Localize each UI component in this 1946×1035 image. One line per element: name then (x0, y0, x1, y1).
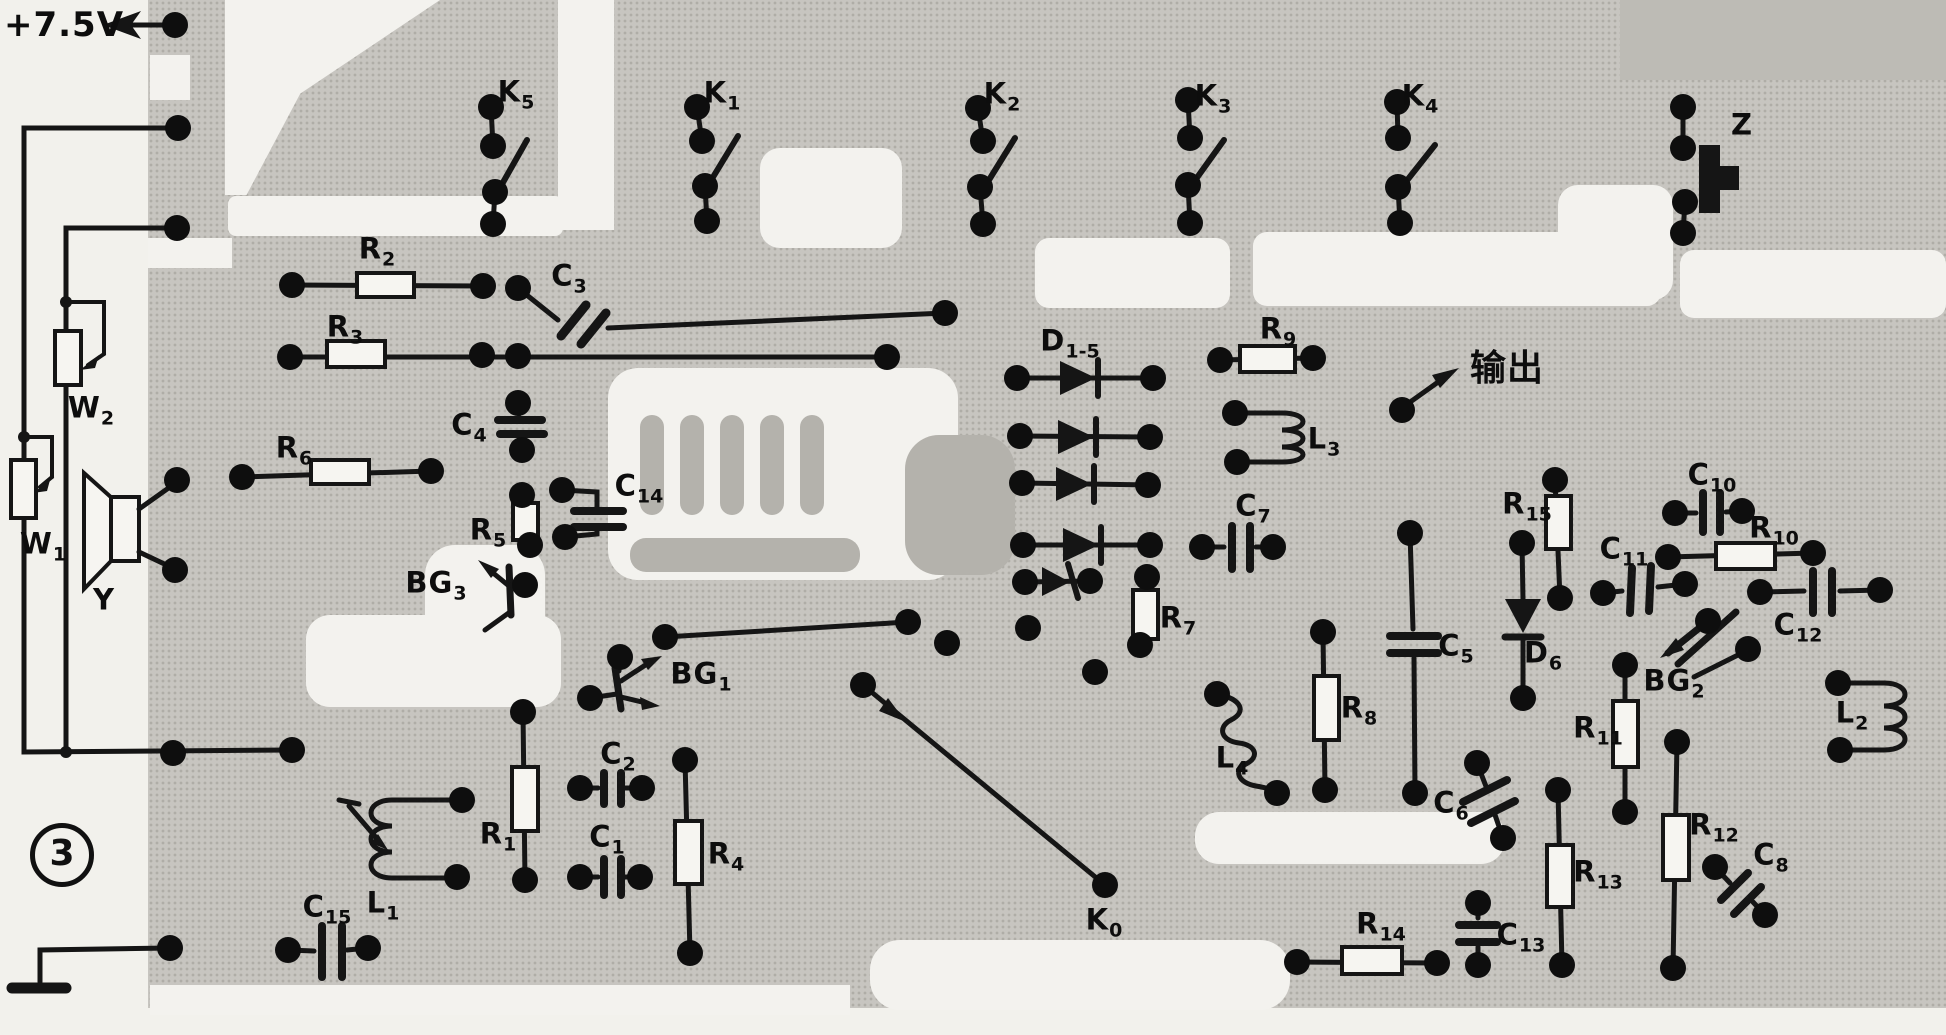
solder-pad (895, 609, 921, 635)
solder-pad (692, 173, 718, 199)
label-R13: R13 (1573, 858, 1623, 893)
solder-pad (1670, 94, 1696, 120)
solder-pad (694, 208, 720, 234)
label-R6: R6 (276, 434, 313, 469)
solder-pad (1264, 780, 1290, 806)
solder-pad (275, 937, 301, 963)
solder-pad (1385, 125, 1411, 151)
solder-pad (1177, 125, 1203, 151)
resistor-R14 (1297, 947, 1437, 974)
label-C8: C8 (1753, 841, 1789, 876)
solder-pad (517, 532, 543, 558)
solder-pad (1660, 955, 1686, 981)
circuit-board-svg (0, 0, 1946, 1035)
solder-pad (1312, 777, 1338, 803)
solder-pad (1547, 585, 1573, 611)
diode-D1 (1017, 360, 1153, 396)
solder-pad (1222, 400, 1248, 426)
solder-pad (512, 867, 538, 893)
label-C13: C13 (1497, 921, 1546, 956)
solder-pad (629, 775, 655, 801)
label-R12: R12 (1689, 811, 1739, 846)
label-K5: K5 (498, 78, 535, 113)
solder-pad (1137, 532, 1163, 558)
label-L2: L2 (1836, 699, 1869, 734)
label-K0: K0 (1086, 906, 1123, 941)
solder-pad (1510, 685, 1536, 711)
solder-pad (1127, 632, 1153, 658)
solder-pad (1010, 532, 1036, 558)
solder-pad (505, 275, 531, 301)
solder-pad (480, 211, 506, 237)
figure-number-circle: 3 (30, 823, 94, 887)
label-R9: R9 (1260, 315, 1297, 350)
solder-pad (1310, 619, 1336, 645)
solder-pad (1867, 577, 1893, 603)
solder-pad (1612, 799, 1638, 825)
solder-pad (1012, 569, 1038, 595)
resistor-R2 (292, 273, 483, 297)
solder-pad (567, 864, 593, 890)
solder-pad (160, 740, 186, 766)
label-C2: C2 (600, 740, 636, 775)
solder-pad (970, 211, 996, 237)
label-R8: R8 (1341, 694, 1378, 729)
solder-pad (677, 940, 703, 966)
label-L4: L4 (1216, 744, 1249, 779)
solder-pad (970, 128, 996, 154)
solder-pad (1389, 397, 1415, 423)
solder-pad (1015, 615, 1041, 641)
switch-K4 (1397, 102, 1435, 223)
solder-pad (1465, 952, 1491, 978)
solder-pad (277, 344, 303, 370)
label-R15: R15 (1502, 490, 1552, 525)
solder-pad (162, 12, 188, 38)
solder-pad (1134, 564, 1160, 590)
solder-pad (1752, 902, 1778, 928)
inductor-L1 (339, 800, 462, 878)
solder-pad (567, 775, 593, 801)
solder-pad (1464, 750, 1490, 776)
solder-pad (162, 557, 188, 583)
resistor-R12 (1663, 742, 1689, 968)
solder-pad (470, 273, 496, 299)
solder-pad (279, 272, 305, 298)
label-R7: R7 (1160, 604, 1197, 639)
label-Y: Y (93, 586, 115, 621)
label-C7: C7 (1235, 492, 1271, 527)
label-C6: C6 (1433, 789, 1469, 824)
label-power: +7.5V (4, 8, 124, 42)
output-arrow (1406, 368, 1459, 405)
diode-D2 (1020, 419, 1150, 455)
label-C3: C3 (551, 262, 587, 297)
switch-K5 (491, 107, 527, 224)
solder-pad (509, 482, 535, 508)
solder-pad (509, 437, 535, 463)
label-K2: K2 (984, 80, 1021, 115)
switch-K2 (978, 108, 1015, 224)
solder-pad (689, 128, 715, 154)
solder-pad (1800, 540, 1826, 566)
label-R10: R10 (1749, 514, 1799, 549)
solder-pad (1655, 544, 1681, 570)
solder-pad (967, 174, 993, 200)
solder-pads (157, 12, 1893, 981)
solder-pad (164, 215, 190, 241)
potentiometer-W2 (55, 302, 104, 385)
solder-pad (510, 699, 536, 725)
label-BG1: BG1 (670, 660, 731, 695)
label-W2: W2 (68, 394, 114, 429)
solder-pad (1207, 347, 1233, 373)
label-Z: Z (1731, 111, 1753, 146)
solder-pad (355, 935, 381, 961)
solder-pad (932, 300, 958, 326)
label-BG3: BG3 (405, 569, 466, 604)
solder-pad (1664, 729, 1690, 755)
potentiometer-W1 (11, 437, 52, 518)
solder-pad (1612, 652, 1638, 678)
solder-pad (577, 685, 603, 711)
label-R4: R4 (708, 840, 745, 875)
solder-pad (1204, 681, 1230, 707)
switch-K3 (1188, 100, 1224, 223)
solder-pad (652, 624, 678, 650)
label-W1: W1 (20, 530, 66, 565)
solder-pad (1300, 345, 1326, 371)
label-C11: C11 (1600, 535, 1649, 570)
solder-pad (1007, 423, 1033, 449)
solder-pad (1135, 472, 1161, 498)
solder-pad (1189, 534, 1215, 560)
pointer-K0 (863, 685, 1105, 885)
label-R1: R1 (480, 820, 517, 855)
label-D6: D6 (1524, 639, 1562, 674)
resistor-R4 (675, 760, 702, 953)
solder-pad (1509, 530, 1535, 556)
label-K4: K4 (1402, 82, 1439, 117)
solder-pad (1004, 365, 1030, 391)
resistor-R6 (242, 460, 431, 484)
label-R3: R3 (327, 313, 364, 348)
solder-pad (874, 344, 900, 370)
diode-D4 (1023, 527, 1150, 563)
solder-pad (1672, 571, 1698, 597)
solder-pad (1827, 737, 1853, 763)
solder-pad (672, 747, 698, 773)
solder-pad (279, 737, 305, 763)
solder-pad (1735, 636, 1761, 662)
solder-pad (512, 572, 538, 598)
label-D1-5: D1-5 (1040, 327, 1099, 362)
solder-pad (1590, 580, 1616, 606)
solder-pad (1702, 854, 1728, 880)
solder-pad (1077, 568, 1103, 594)
diode-D3 (1022, 466, 1148, 502)
solder-pad (505, 343, 531, 369)
solder-pad (418, 458, 444, 484)
solder-pad (1009, 470, 1035, 496)
figure-number: 3 (49, 833, 74, 874)
solder-pad (1175, 172, 1201, 198)
solder-pad (850, 672, 876, 698)
label-L3: L3 (1308, 425, 1341, 460)
label-R11: R11 (1573, 714, 1623, 749)
solder-pad (1137, 424, 1163, 450)
solder-pad (552, 524, 578, 550)
jumper-wire (665, 622, 908, 637)
label-R2: R2 (359, 235, 396, 270)
solder-pad (1825, 670, 1851, 696)
solder-pad (1465, 890, 1491, 916)
ground-symbol (12, 948, 170, 988)
solder-pad (1260, 534, 1286, 560)
label-C4: C4 (451, 411, 487, 446)
solder-pad (482, 179, 508, 205)
switch-K1 (697, 107, 738, 221)
solder-pad (1402, 780, 1428, 806)
label-C5: C5 (1438, 632, 1474, 667)
label-output: 输出 (1470, 351, 1544, 387)
solder-pad (1284, 949, 1310, 975)
solder-pad (1224, 449, 1250, 475)
solder-pad (165, 115, 191, 141)
diode-D6 (1505, 543, 1541, 698)
solder-pad (1662, 500, 1688, 526)
solder-pad (505, 390, 531, 416)
resistor-R3 (290, 341, 887, 367)
solder-pad (164, 467, 190, 493)
solder-pad (1549, 952, 1575, 978)
label-C1: C1 (589, 823, 625, 858)
label-R5: R5 (470, 516, 507, 551)
label-K1: K1 (704, 79, 741, 114)
solder-pad (1490, 825, 1516, 851)
capacitor-C5 (1390, 533, 1438, 793)
solder-pad (1397, 520, 1423, 546)
solder-pad (1695, 608, 1721, 634)
pcb-layout-figure: +7.5V 输出 3 K5 K1 K2 K3 K4 Z R2 R3 R6 C3 … (0, 0, 1946, 1035)
solder-pad (1545, 777, 1571, 803)
solder-pad (607, 644, 633, 670)
left-bus-wiring (18, 128, 292, 758)
solder-pad (1670, 135, 1696, 161)
label-C14: C14 (615, 472, 664, 507)
solder-pad (469, 342, 495, 368)
solder-pad (934, 630, 960, 656)
solder-pad (480, 133, 506, 159)
solder-pad (1092, 872, 1118, 898)
solder-pad (1140, 365, 1166, 391)
solder-pad (1385, 174, 1411, 200)
solder-pad (1387, 210, 1413, 236)
label-C12: C12 (1774, 611, 1823, 646)
solder-pad (229, 464, 255, 490)
solder-pad (1747, 579, 1773, 605)
solder-pad (1670, 220, 1696, 246)
label-C10: C10 (1688, 461, 1737, 496)
label-BG2: BG2 (1643, 667, 1704, 702)
solder-pad (627, 864, 653, 890)
solder-pad (449, 787, 475, 813)
solder-pad (1672, 189, 1698, 215)
resistor-R8 (1314, 632, 1339, 790)
label-L1: L1 (367, 889, 400, 924)
label-C15: C15 (303, 893, 352, 928)
solder-pad (549, 477, 575, 503)
solder-pad (444, 864, 470, 890)
solder-pad (1082, 659, 1108, 685)
solder-pad (1177, 210, 1203, 236)
label-K3: K3 (1195, 82, 1232, 117)
label-R14: R14 (1356, 910, 1406, 945)
resistor-R13 (1547, 790, 1573, 965)
solder-pad (157, 935, 183, 961)
solder-pad (1424, 950, 1450, 976)
resistor-R9 (1220, 346, 1313, 372)
